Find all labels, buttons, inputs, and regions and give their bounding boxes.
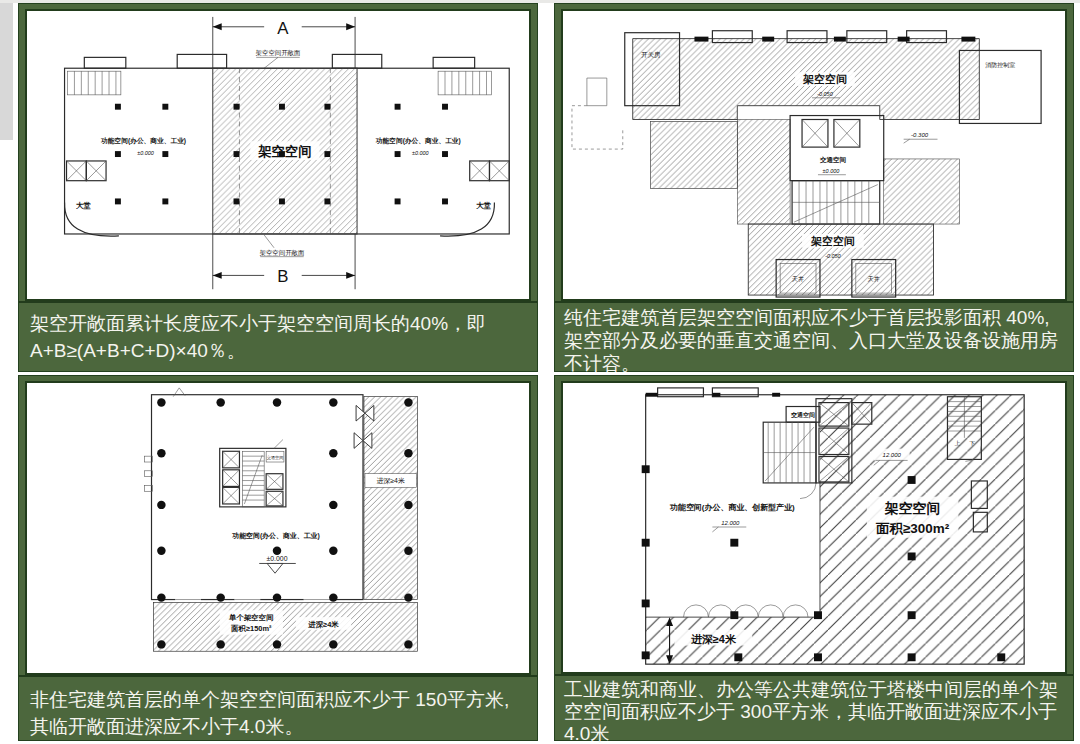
switch-room-label: 开关房 <box>641 51 661 58</box>
open-edge-bottom-label: 架空空间开敞面 <box>260 249 305 257</box>
open-edge-bottom-leader: 架空空间开敞面 <box>260 235 305 257</box>
traffic-space-tag: 交通空间 <box>786 407 820 423</box>
traffic-space-label: 交通空间 <box>819 156 846 164</box>
caption-line: 空空间面积应不少于 300平方米，其临开敞面进深应不小于 <box>564 701 1065 723</box>
lobby-left-label: 大堂 <box>76 201 91 210</box>
level-right-label: ±0.000 <box>412 150 429 156</box>
caption-bottom-right: 工业建筑和商业、办公等公共建筑位于塔楼中间层的单个架 空空间面积应不少于 300… <box>555 674 1073 740</box>
caption-line: 架空开敞面累计长度应不小于架空空间周长的40%，即 <box>30 310 527 337</box>
fire-control-room-label: 消防控制室 <box>985 61 1015 69</box>
caption-line: A+B≥(A+B+C+D)×40％。 <box>30 337 527 364</box>
core: 交通空间 ±0.000 <box>790 116 884 181</box>
floor-plan-residential-tower: 开关房 消防控制室 架空空间 -0.050 <box>563 11 1065 299</box>
stilt-area-line1: 单个架空空间 <box>228 613 273 622</box>
floor-plan-twin-tower: A 架空空间开敞面 <box>27 11 529 299</box>
core: 交通空间 <box>220 440 286 507</box>
depth-label: 进深≥4米 <box>690 633 737 645</box>
image-panel-bottom-right: 交通空间 上 下 功能空间(办公、 <box>561 381 1067 674</box>
image-panel-top-left: A 架空空间开敞面 <box>25 9 531 301</box>
hatch-areas <box>646 395 1024 664</box>
hatch-areas <box>153 397 417 652</box>
dimension-A: A <box>213 17 355 68</box>
lobby-right-label: 大堂 <box>476 201 491 210</box>
level-bottom-label: -0.050 <box>825 253 840 259</box>
stilt-space-bottom-label: 架空空间 <box>810 235 855 247</box>
level-core-label: ±0.000 <box>823 168 840 174</box>
func-space-left-label: 功能空间(办公、商业、工业) <box>100 137 186 145</box>
caption-top-right: 纯住宅建筑首层架空空间面积应不少于首层投影面积 40%, 架空部分及必要的垂直交… <box>555 301 1073 371</box>
level-top-label: -0.050 <box>817 91 832 97</box>
level-stilt-label: 12.000 <box>883 452 902 458</box>
caption-line: 纯住宅建筑首层架空空间面积应不少于首层投影面积 40%, <box>564 306 1065 329</box>
func-labels: 功能空间(办公、商业、创新型产业) 12.000 <box>669 502 795 531</box>
dim-label-A: A <box>277 19 289 38</box>
caption-line: 架空部分及必要的垂直交通空间、入口大堂及设备设施用房 <box>564 329 1065 352</box>
depth-right-label: 进深≥4米 <box>376 478 404 486</box>
level-label: ±0.000 <box>266 555 287 562</box>
caption-bottom-left: 非住宅建筑首层的单个架空空间面积应不少于 150平方米, 其临开敞面进深应不小于… <box>19 675 537 740</box>
func-space-label: 功能空间(办公、商业、创新型产业) <box>669 502 795 512</box>
level-right-mark: -0.300 <box>904 132 938 143</box>
dimension-B: B <box>213 234 355 289</box>
building-walls <box>145 388 363 602</box>
stair-down-label: 下 <box>970 440 976 446</box>
level-left-label: ±0.000 <box>137 150 154 156</box>
core-traffic-label: 交通空间 <box>267 455 284 461</box>
stair-left <box>763 422 816 483</box>
stair <box>792 181 880 224</box>
image-panel-top-right: 开关房 消防控制室 架空空间 -0.050 <box>561 9 1067 301</box>
floor-plan-mid-level: 交通空间 上 下 功能空间(办公、 <box>563 383 1065 672</box>
left-scroll-strip <box>0 3 13 140</box>
caption-line: 非住宅建筑首层的单个架空空间面积应不少于 150平方米, <box>30 686 527 713</box>
caption-top-left: 架空开敞面累计长度应不小于架空空间周长的40%，即 A+B≥(A+B+C+D)×… <box>19 301 537 371</box>
func-space-right-label: 功能空间(办公、商业、工业) <box>375 137 461 145</box>
slide-grid: A 架空空间开敞面 <box>18 3 1074 744</box>
cell-bottom-left: 交通空间 功能空间(办公、商业、工业) ±0.000 进深≥4米 单个架空空间 … <box>18 375 538 741</box>
stilt-space-top-label: 架空空间 <box>802 73 847 85</box>
caption-line: 其临开敞面进深应不小于4.0米。 <box>30 713 527 740</box>
dim-label-B: B <box>277 267 288 286</box>
stilt-space-label: 架空空间 <box>884 500 941 516</box>
level-right-label: -0.300 <box>911 132 929 138</box>
level-func-label: 12.000 <box>721 520 740 526</box>
open-edge-top-leader: 架空空间开敞面 <box>256 49 301 68</box>
cell-top-right: 开关房 消防控制室 架空空间 -0.050 <box>554 3 1074 372</box>
image-panel-bottom-left: 交通空间 功能空间(办公、商业、工业) ±0.000 进深≥4米 单个架空空间 … <box>25 381 531 675</box>
caption-line: 4.0米 <box>564 723 1065 744</box>
lightwell-right-label: 天井 <box>868 275 880 282</box>
floor-plan-ground-floor: 交通空间 功能空间(办公、商业、工业) ±0.000 进深≥4米 单个架空空间 … <box>27 383 529 673</box>
lightwell-left-label: 天井 <box>792 275 804 282</box>
open-edge-top-label: 架空空间开敞面 <box>256 49 301 57</box>
cell-bottom-right: 交通空间 上 下 功能空间(办公、 <box>554 375 1074 741</box>
stilt-area-label: 面积≥300m² <box>875 521 950 536</box>
caption-line: 工业建筑和商业、办公等公共建筑位于塔楼中间层的单个架 <box>564 679 1065 701</box>
cell-top-left: A 架空空间开敞面 <box>18 3 538 372</box>
depth-bottom-label: 进深≥4米 <box>307 620 339 629</box>
traffic-space-label: 交通空间 <box>790 411 815 419</box>
caption-line: 不计容。 <box>564 352 1065 375</box>
func-space-label: 功能空间(办公、商业、工业) <box>231 532 319 540</box>
stilt-area-line2: 面积≥150m² <box>230 624 272 633</box>
stair-up-label: 上 <box>955 440 961 446</box>
